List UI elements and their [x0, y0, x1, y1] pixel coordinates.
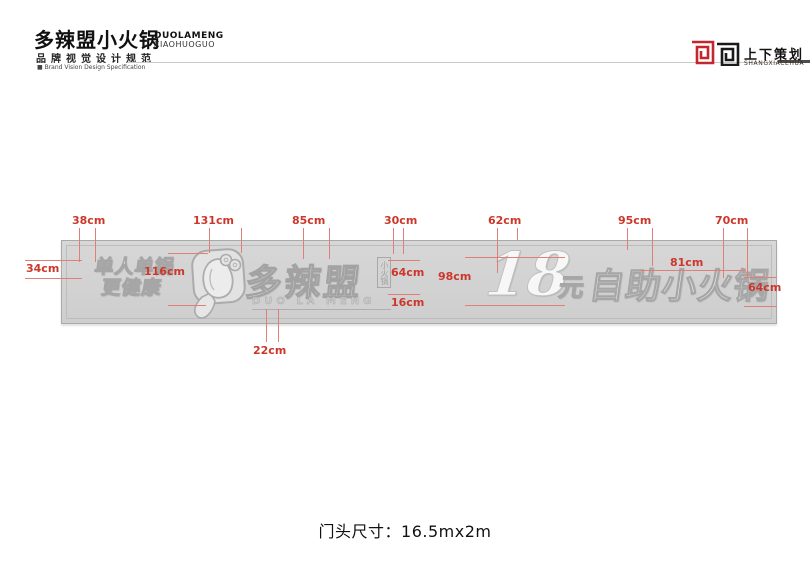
mascot-berry-2 — [230, 260, 241, 271]
measure-label-38cm: 38cm — [72, 214, 105, 227]
measure-line — [517, 228, 518, 240]
measure-line — [303, 228, 304, 259]
measure-line — [278, 309, 279, 342]
measure-line — [95, 228, 96, 262]
measure-line — [168, 253, 208, 254]
logo-seal: 小火锅 — [377, 257, 391, 288]
measure-label-64cm-logo: 64cm — [391, 266, 424, 279]
measure-line — [329, 228, 330, 259]
measure-label-16cm: 16cm — [391, 296, 424, 309]
measure-label-81cm: 81cm — [670, 256, 703, 269]
chili-mascot-icon — [188, 247, 248, 325]
measure-line — [25, 278, 82, 279]
agency-logo — [690, 40, 742, 66]
sign-slogan: 单人单锅 更健康 — [72, 257, 194, 300]
measure-label-116cm: 116cm — [144, 265, 185, 278]
measure-line — [79, 228, 80, 262]
sign-logo-en: DUO LA MENG — [252, 296, 375, 307]
square-spiral-icons — [690, 40, 742, 66]
spiral-red-icon — [692, 42, 713, 63]
measure-line — [465, 257, 565, 258]
measure-label-98cm: 98cm — [438, 270, 471, 283]
measure-label-70cm: 70cm — [715, 214, 748, 227]
measure-label-85cm: 85cm — [292, 214, 325, 227]
measure-label-34cm: 34cm — [26, 262, 59, 275]
brand-title: 多辣盟小火锅 — [34, 24, 160, 53]
measure-label-22cm: 22cm — [253, 344, 286, 357]
measure-line — [744, 277, 777, 278]
measure-line — [241, 228, 242, 253]
measure-label-30cm: 30cm — [384, 214, 417, 227]
measure-line — [266, 309, 267, 342]
measure-line — [393, 228, 394, 254]
slogan-line2: 更健康 — [72, 278, 191, 299]
measure-line — [652, 228, 653, 266]
measure-line — [627, 228, 628, 250]
brand-title-en: DUOLAMENG XIAOHUOGUO — [154, 32, 224, 50]
measure-line — [168, 305, 206, 306]
measure-line — [25, 260, 82, 261]
measure-line — [388, 294, 420, 295]
measure-line — [209, 228, 210, 253]
measure-line — [388, 260, 420, 261]
measure-line — [640, 270, 746, 271]
measure-label-131cm: 131cm — [193, 214, 234, 227]
design-spec-page: 多辣盟小火锅 DUOLAMENG XIAOHUOGUO 品牌视觉设计规范 ■ B… — [0, 0, 810, 573]
measure-label-64cm-right: 64cm — [748, 281, 781, 294]
price-unit: 元 — [556, 268, 586, 304]
logo-underline — [252, 309, 391, 310]
measure-line — [497, 228, 498, 273]
measure-line — [744, 306, 777, 307]
measure-line — [403, 228, 404, 254]
brand-en-line2: XIAOHUOGUO — [154, 41, 224, 49]
measure-line — [465, 305, 565, 306]
measure-label-62cm: 62cm — [488, 214, 521, 227]
measure-label-95cm: 95cm — [618, 214, 651, 227]
spiral-black-icon — [717, 44, 738, 65]
measure-line — [747, 228, 748, 278]
logo-seal-text: 小火锅 — [380, 261, 388, 285]
page-subtitle-en: ■ Brand Vision Design Specification — [37, 64, 145, 71]
agency-name-en: SHANGXIACEHUA — [744, 60, 804, 67]
door-size-caption: 门头尺寸：16.5mx2m — [0, 518, 810, 542]
